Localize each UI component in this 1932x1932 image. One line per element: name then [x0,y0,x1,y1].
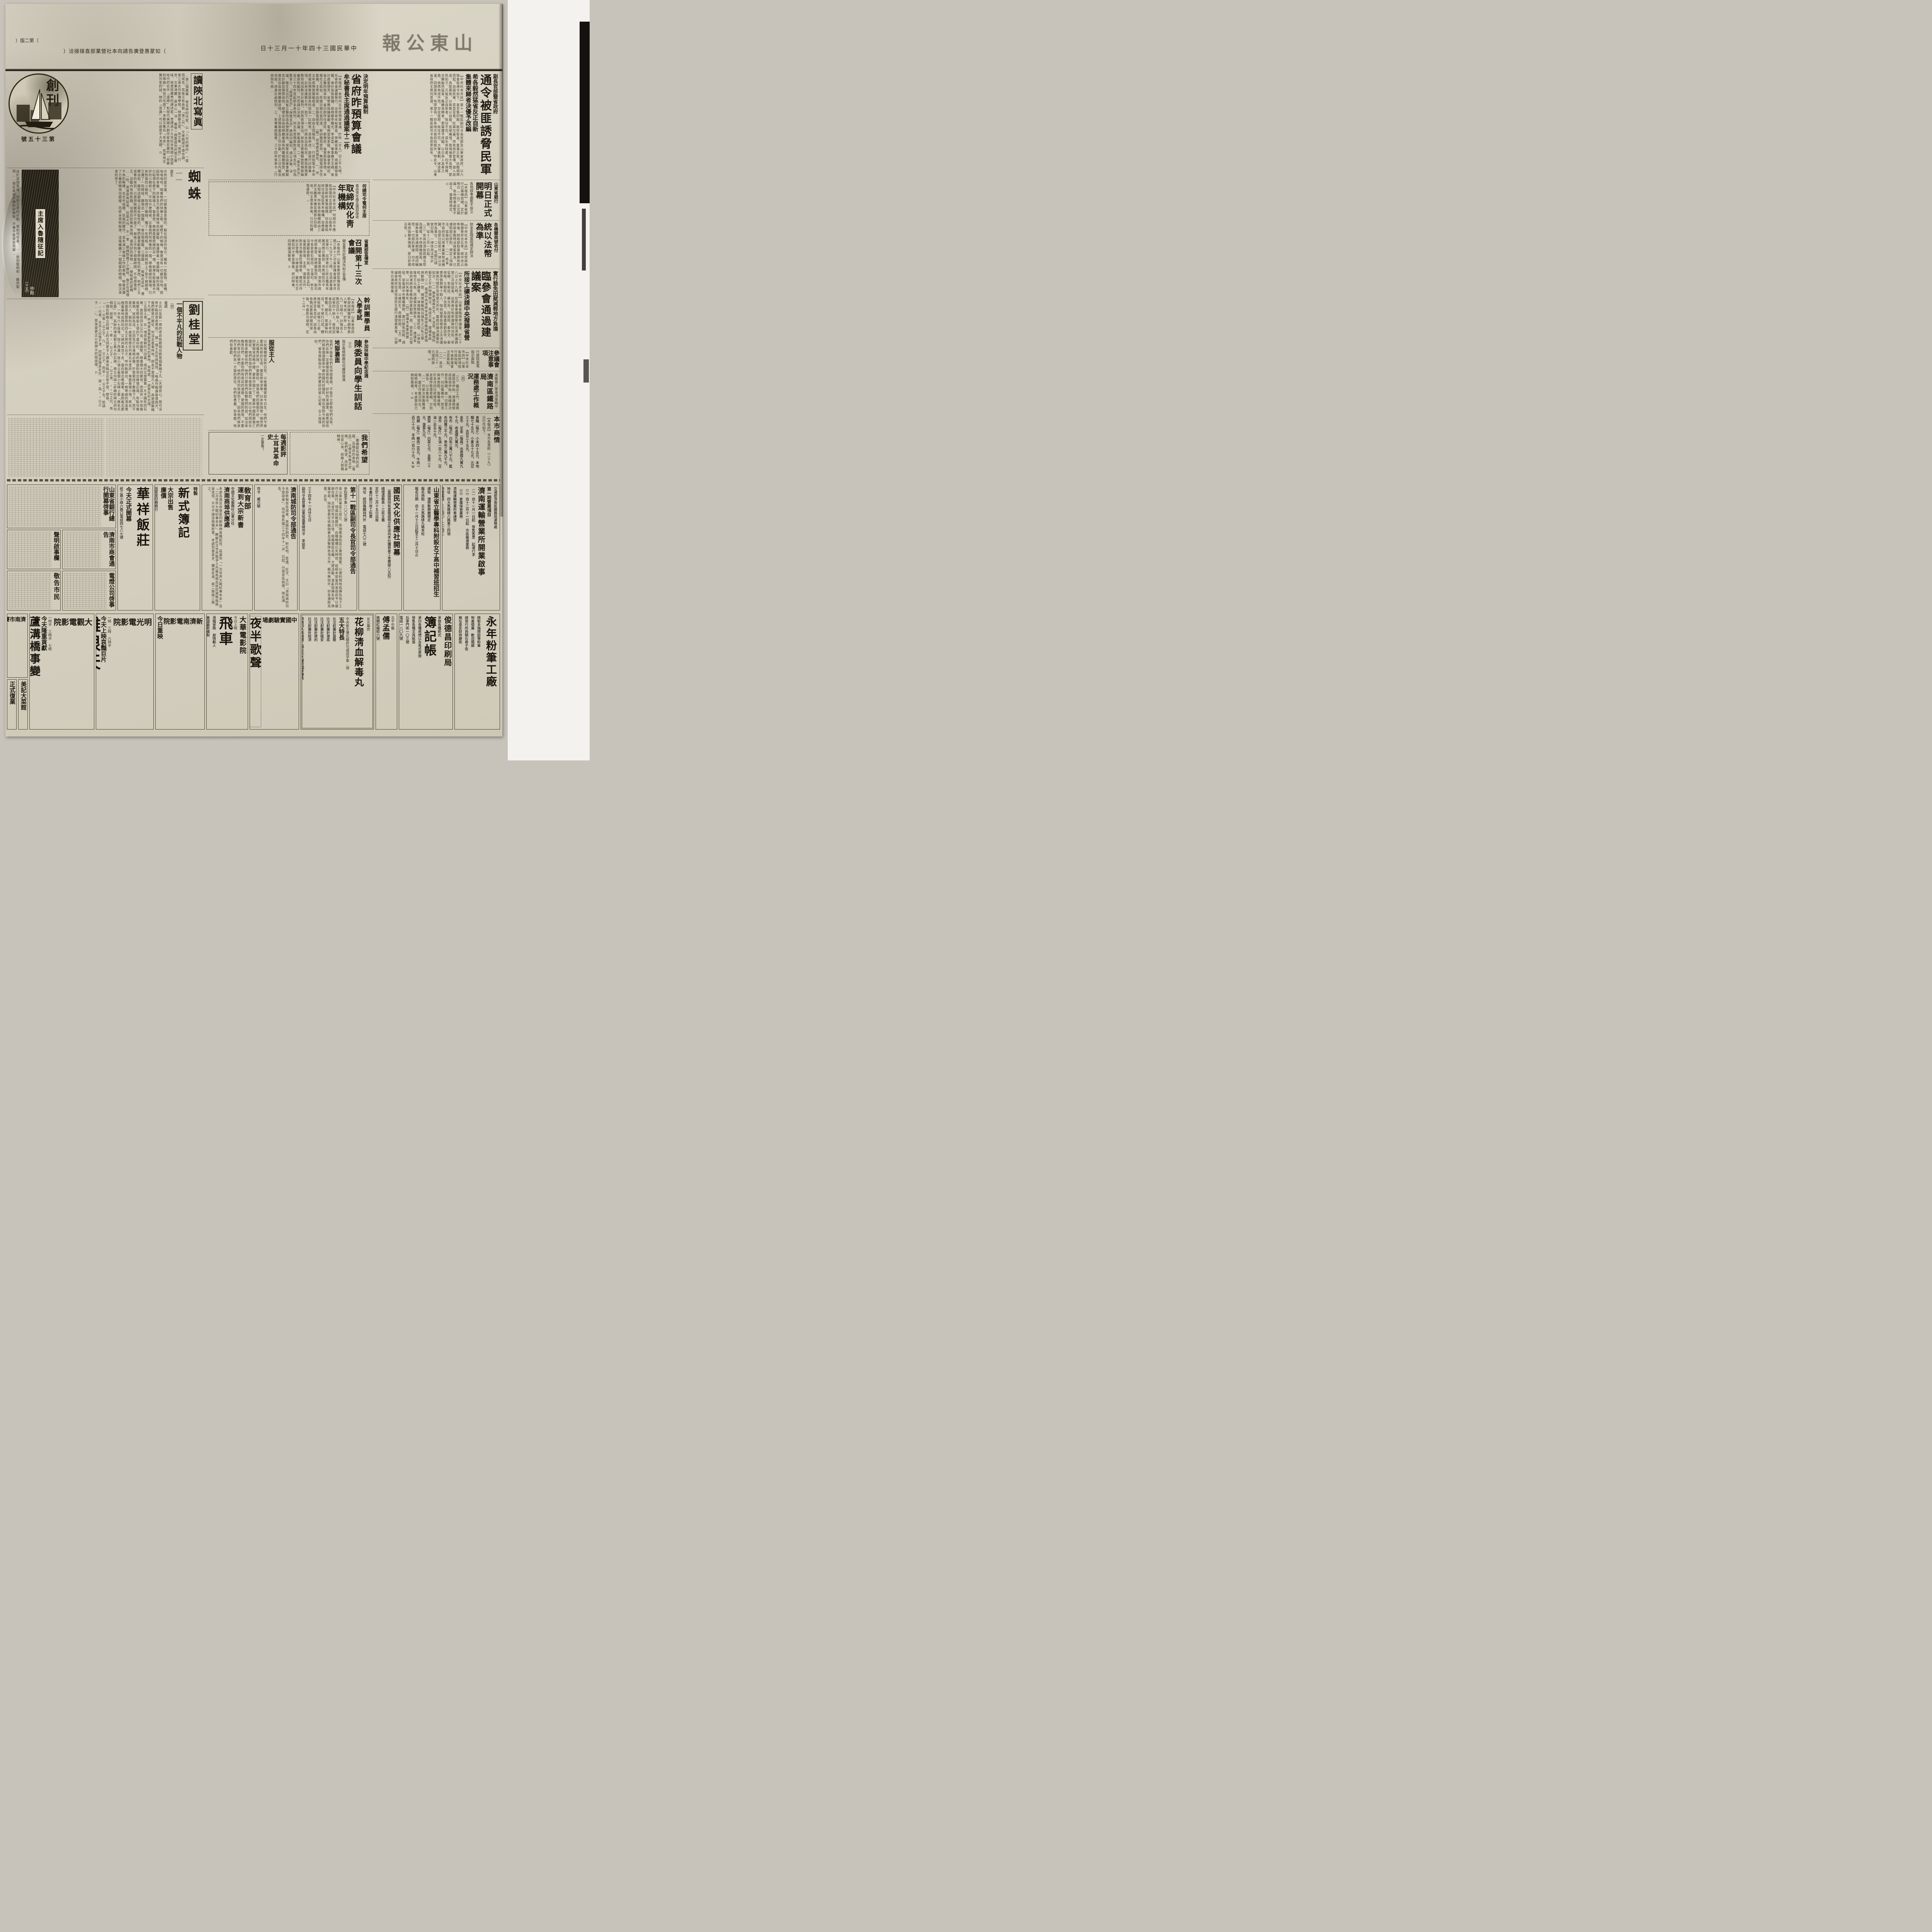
notice-title: 聲明啟事欄 [53,532,59,568]
ad-title: 新式簿記 [174,487,191,608]
article-body: 【本報訊】山東省銀行已籌備就緒、定於明日（一日）正式開幕、各地辦事處暫不設立、需… [374,182,468,218]
ad-address: 經三路小緯六路口電話四七八七號 [119,487,124,608]
serial-title: 主席入魯隨征記 [35,209,46,259]
ad-title: 華祥飯莊 [132,487,151,608]
ad-date: 三十四年十一月廿七日 [307,487,312,608]
article-kicker: 省黨部宣傳室 [363,239,369,265]
ad-xinjinan-cinema: 院影電南濟新 今日重映 英茵遺作 返魂香 劇情動人 百觀不厭 日場二時 夜場七時… [155,614,205,730]
article-xunhua: 參加扶輪中學紀念週 陳委員向學生訓話 （三） 指示兩條明路句句痛快淋漓 地獄裏面… [208,338,370,430]
cinema-name: 大華電影院 [239,616,246,727]
newspaper-scan: ）版二第（ ）洽接接直部業營社本向請告廣登惠蒙如（ 日十三月一十年四十三國民華中… [0,0,590,760]
article-title-2: 運務處工作概況 [467,373,478,412]
ad-feature: 比注射藥針靈驗 [332,617,337,726]
ad-line: （三）倉庫保管業務 [459,487,464,608]
article-subtitle: 指示兩條明路句句痛快淋漓 [341,340,346,381]
ad-number: 參鈞璽字第一〇〇三號 [343,487,348,608]
article-title: 陳委員向學生訓話 [354,340,362,411]
ad-line: 滑稽冒險 劇情動人 [212,616,217,727]
ad-agency: 中國文化服務社山東分社 [230,487,235,608]
unreadable-text-columns [64,573,107,609]
article-shangqing: 本市商情 【本報訊】本市各貨昨（二十九）日行市如下、 食糧（每斤）小米四十五元、… [372,414,500,472]
ad-price-word: 廉價 [160,487,166,608]
ad-feature: 比注射藥針穩安 [320,617,325,726]
masthead-date: 日十三月一十年四十三國民華中 [260,44,358,52]
notice-shengbank: 山東省銀行總行開幕啓事 [7,485,116,528]
classifieds-box: 正式復業 三奇 保三製藥廠總發售 精製滅痙疥癬 統治各科 雅潔養病室 隨意入院 … [7,679,17,730]
market-item: 肉類（每斤）豬肉二百元、牛肉一百三十元、羊肉一百六十元、KW [411,416,421,470]
article-body: 【中央社本市訊】山東省臨時參議會、於二十八日上午九時、在該會會議室舉行在濟參議員… [374,271,462,346]
ad-line: 濟南運輸營業所奉謹啓 [452,487,457,608]
ad-title: 國民文化供應社開幕 [393,487,400,608]
notice-shanghui: 濟南市商會通告 [62,530,116,570]
article-title: 明日正式開幕 [475,182,492,218]
market-item: 布市（每疋）白布三萬八千元、藍布四萬三千元、靑布三萬九千元、 [443,416,453,470]
ad-feature-head: 五大特長 [338,617,344,726]
notice-title: 濟南市商會通告 [102,532,114,568]
ad-guomin: 國民文化供應社開幕 （黨國員持有黨團證明文件逕向本社購買者工本費按八五扣） 總理… [359,485,402,611]
ad-daguan-cinema: 院影電觀大 一時半 三時半 七時 今天隆重貢獻 蘆溝橋事變 抗戰歌曲 加映 美國… [29,614,94,730]
ad-kicker: 北平中醫 [390,616,395,727]
ad-tag-2: 大宗出售 [167,487,173,608]
article-subtitle: 所接工礦決請中央撥歸省營 [463,271,469,340]
ad-body: 本處為滿足收復區同胞精神食糧起見、茲運到「一次世界大戰紀事本末」及「二次世界大戰… [204,487,222,608]
notice-title: 電燈公司啓事 [108,573,114,609]
classified-line: 正式復業 [9,681,15,728]
article-kicker: 參加扶輪中學紀念週 [363,340,369,378]
article-xuanchuan: 省黨部宣傳室 召開第十三次會議 關金黑市貶價決作糾正宣傳 【本報訊】山東省黨部宣… [208,237,370,295]
ad-title: 山東省立醫學專科附設女子高中補習班招生 [433,487,439,608]
article-body: 【中央社本市訊】法幣與偽聯銀券折合比率、經中央公佈後、財政部駐冀魯察熱區財政金融… [374,223,468,267]
article-body: 【本報訊】山東省黨部宣傳室召開之第十三次省宣傳會議於本月二十九日下午二時、在該處… [209,239,340,293]
section-body: 我們不能看你們在地獄裏面、不能不立即救你們出來、你們此後一定要服從張校長、好好的… [275,340,333,428]
ad-fenbi: 永年粉筆工廠 精製多福牌超等粉筆 物美價廉 歡迎賜顧 總發行所西關石巷子街 廠址… [454,614,500,730]
ad-line: 發售各種文具紙張 [411,616,416,727]
show-title: 夜半歌聲 [250,616,261,727]
cinema-name: 院影電觀大 [54,616,92,727]
ad-feature: 比注射藥針便利 [313,617,318,726]
ad-huaxiang: 華祥飯莊 今天正式開幕 經三路小緯六路口電話四七八七號 [117,485,153,611]
article-kicker: 各機關商號收付 [493,223,499,252]
unreadable-text-columns [9,417,104,477]
notice-jinggao: 敬告市民 [7,571,61,611]
article-title: 通令被匪誘脅民軍 [479,74,490,176]
article-subtitle: 牟秘書長主席通過議案十二件 [343,74,349,149]
ad-chengfang-tonggao: 濟南城防司令部通告 本部新製官佐證章、係圓形銅質、粉紅地、藍邊、紅字、文曰「濟南… [254,485,298,611]
serial-body: 由於這個電報、可知主席的計劃、是如何完善、……敖到黎明呢·雖然黎明……現在竟被扞… [9,170,19,297]
article-body: …繼續獻出他們的武器、及積存的食物（毒品）、以便多來幾次焚燒、我們希望、商民拿出… [292,434,359,472]
article-body: 【本報訊】省府卅五年度預算會議、於昨（廿九）日上午九時、在省府會議廳舉行、出席者… [209,74,342,178]
notice-title: 敬告市民 [53,573,59,609]
essay-body: 炎熱的夏天裏、一切都像窒息般的、躱在陰涼的地方、獨有一些動物、蒼蠅、嗡嗡嗡地、唱… [61,170,167,297]
article-title-2: 入學考試 [356,297,362,320]
article-title: 臨參會通過建議案 [470,271,490,346]
ad-title: 永年粉筆工廠 [483,616,498,727]
cinema-name: 院影電南濟新 [163,616,203,727]
article-subtitle: 集體來歸者決優予改編 [465,74,471,132]
article-ganxun: 幹訓團學員 入學考試 【本報訊】山東省政府幹部訓練團第七期學員入學考試、於昨（廿… [208,295,370,338]
market-item: 食糧（每斤）小米四十五元、本地麵七十五元、小麥五十七元、元豆三十元、吉豆三十五元… [465,416,480,470]
article-kicker: 副長官部曁省政府 [492,74,499,114]
scan-artifact [582,209,586,270]
ad-tag: 特製 [192,487,198,608]
unreadable-text-columns [9,573,51,609]
article-kicker: 決定明年預算編制 [362,74,369,114]
article-subtitle: 希各毅然猛省反正自新 [472,74,478,132]
ad-line: 名廚製做 [18,681,19,728]
ad-title: 傅孟儒 [382,616,389,727]
section-heading: 地獄裏面 [334,340,340,428]
feature-part: （四） [170,301,175,311]
classified-line: 三奇 [7,681,8,728]
unreadable-text-columns [107,417,202,477]
ad-title: 運到大宗新書 [236,487,243,608]
ad-office: 濟南商埠供應處 [223,487,229,608]
ad-address: 地址 四大馬路緯六路第三四號 [446,487,451,608]
section-heading: 服從主人 [268,340,274,428]
notice-shengming: 聲明啟事欄 [7,530,61,570]
article-body: 【中央社本市訊】山東省政府頃接行政院電、今後參議會注意兩點、（一）…（二）准司法… [374,350,469,369]
article-kicker: 山東省銀行 [493,182,499,203]
column-center: 決定明年預算編制 省府昨預算會議 牟秘書長主席通過議案十二件 【本報訊】省府卅五… [208,72,370,477]
film-review-note: 一定要看！ [260,434,265,473]
film-title: 飛車 [218,616,232,727]
ad-note: 今日上映 [233,616,238,727]
ad-note: 今日重映 [156,616,162,727]
ad-note: 今天上映哀豔巨片 [100,616,106,727]
article-title: 每週影評 [280,434,286,473]
feature-shanbei: 讀陝北寫眞 …第二個蕭軍·是吉林的作家、以「八月的鄕村」一書而成名、其後又有長篇… [7,72,204,168]
ad-header: 交通部濟南區鐵路局運務處 [493,487,498,608]
ad-kicker: 敎育部 [244,487,251,608]
ads-row-1: 交通部濟南區鐵路局運務處 第一期營業項目 濟南運輸營業所開業啟事 （一）自十一月… [7,485,500,611]
ornamental-divider [7,479,500,481]
feature-title: 劉桂堂 [183,301,203,350]
edition-label: ）版二第（ [15,37,39,44]
article-wishes: 我們希望 …繼續獻出他們的武器、及積存的食物（毒品）、以便多來幾次焚燒、我們希望… [290,432,369,474]
scan-margin [508,0,590,760]
essay-author: 雲生 [169,170,174,177]
column-left: 讀陝北寫眞 …第二個蕭軍·是吉林的作家、以「八月的鄕村」一書而成名、其後又有長篇… [7,72,204,477]
article-zhuyi: 參議會注意事項 行政院來電指示兩點 【中央社本市訊】山東省政府頃接行政院電、今後… [372,348,500,371]
film-title: 蘆溝橋事變 [29,616,39,727]
article-title: 濟南區鐵路局 [480,373,493,412]
ad-line: 地址 經四路麟祥門外 電話七〇二號 [362,487,367,608]
feature-body: …第二個蕭軍·是吉林的作家、以「八月的鄕村」一書而成名、其後又有長篇「第二代」、… [71,73,189,166]
ad-mingguang-cinema: 院影電光明 一時 三時 六時半 今天上映哀豔巨片 離恨天 主演 錢士英 玲玲 加… [96,614,154,730]
essay-title: 蜘蛛 [184,170,202,204]
article-tongling: 副長官部曁省政府 通令被匪誘脅民軍 希各毅然猛省反正自新 集體來歸者決優予改編 … [372,72,500,180]
article-subtitle: 各地辦事處暫不設立 [469,182,474,213]
market-item: 油市（每斤）生油一百八十元、豆油一百五十元、 [432,416,442,470]
ad-zhan11-tonggao: 第十一戰區副司令長官司令部通告 參鈞璽字第一〇〇三號 查山東各軍區之設立、係適應… [299,485,357,611]
notice-title: 山東省銀行總行開幕啓事 [102,486,114,526]
article-body: （乙）最近工作、運務處接收伊始、適運務號誌接收伊始、路線迭次發生障礙、故一切要工… [374,373,459,412]
serial-part: （十五） [23,279,29,295]
ad-address: 后宰門街一〇三號 [405,616,410,727]
serial-woodcut: 主席入魯隨征記 （十五） 仲勛 [22,170,59,297]
article-intro: 【本報訊】本市各貨昨（二十九）日行市如下、 [481,416,492,470]
scan-artifact [580,22,590,203]
article-bank: 山東省銀行 明日正式開幕 各地辦事處暫不設立 【本報訊】山東省銀行已籌備就緒、定… [372,180,500,221]
article-kicker: 運輸第八軍來濟車輛中 [494,373,499,408]
ad-line: 承印各種商標以及各式表冊 [417,616,422,727]
cinema-name: 院影電光明 [113,616,152,727]
ad-tag: 第一期營業項目 [486,487,492,608]
unreadable-text-columns [64,532,101,568]
ad-line: 課程 遵照敎務廳規定 [427,487,432,608]
emblem-issue-number: 號五十三第 [21,135,56,143]
ad-title: 濟南運輸營業所開業啟事 [477,487,485,608]
ad-phone: 電話一八〇九號 [399,616,404,727]
ad-feature: 比注射藥針經濟 [307,617,312,726]
notice-diandeng: 電燈公司啓事 [62,571,116,611]
article-subtitle: 行政院來電指示兩點 [470,350,480,369]
film-title: 離恨天 [96,616,99,727]
article-body: 【中央社本市訊】第十一戰區副司令長官部及山東省政府、以六號會銜通令如下、查吾魯同… [374,74,463,178]
article-fabi: 各機關商號收付 統以法幣為準 財金金融當局規定辦法 【中央社本市訊】法幣與偽聯銀… [372,221,500,269]
ad-showtimes: 一時半 三時半 七時 [48,616,53,727]
feature-liuguitang: 劉桂堂 一個不平凡的抗戰人物 （四） 雷諾 士兵以及那一帶的老百姓都相信劉是個鱉… [7,299,204,415]
ad-dahua-cinema: 大華電影院 今日上映 飛車 滑稽冒險 劇情動人 美國最新攝製 五彩卡通 時間 二… [206,614,248,730]
article-title: 我們希望 [361,434,367,472]
ad-line: 總發行所西關石巷子街 [464,616,469,727]
ad-line: （二）自十二月十一日起 市區搬運業務 [465,487,470,608]
feature-title: 讀陝北寫眞 [191,73,202,129]
ad-address: 南關紅牆街六號 [376,616,381,727]
article-subtitle: 着由靑年團支團部接收 [355,184,360,219]
ad-juchang: 場劇驗實國中 夜半歌聲 今日最後一天 明日夜場上演 四幕二景大喜劇 陽關三疊 [250,614,299,730]
ad-junde: 俊德昌印刷局 承做各種新式 簿記帳 承印各種商標以及各式表冊 發售各種文具紙張 … [399,614,453,730]
section-body: 以前種種譬如昨日死、以後種種譬如今日生、你們今後要與有新的生命、要從新來求學、日… [209,340,267,428]
newspaper-page: ）版二第（ ）洽接接直部業營社本向請告廣登惠蒙如（ 日十三月一十年四十三國民華中… [5,4,502,736]
ad-saima: 會馬賽市南濟 連續賽馬三日 十一月卅日十二月一二日 （雨天順延） 地址 南郊跑馬… [7,614,28,678]
ad-line: 物美價廉 歡迎賜顧 [470,616,475,727]
article-title: 幹訓團學員 [363,297,369,332]
article-kicker: 何總司令電何主席 [361,184,367,218]
ad-huajiu: 友光藥房 花柳淸血解毒丸 中央衛生署化驗許可證成字第…號 五大特長 比注射藥針靈… [301,614,374,730]
article-title: 省府昨預算會議 [350,74,361,155]
feature-body: 士兵以及那一帶的老百姓都相信劉是個鱉精下凡（天理良心、我可沒有半點惡意來罵他）、… [8,301,162,413]
serial-author: 仲勛 [29,286,35,295]
article-linsan: 實行豁免田賦減輕地方負擔 臨參會通過建議案 所接工礦決請中央撥歸省營 【中央社本… [372,269,500,348]
article-yusuan: 決定明年預算編制 省府昨預算會議 牟秘書長主席通過議案十二件 【本報訊】省府卅五… [208,72,370,180]
article-title: 召開第十三次會議 [348,239,362,293]
masthead-ad-note: ）洽接接直部業營社本向請告廣登惠蒙如（ [63,47,166,54]
ad-feature: 比注射藥針澈底 [326,617,331,726]
masthead-rule [5,70,502,71]
article-quti: 何總司令電何主席 着由靑年團支團部接收 取締奴化靑年機構 【中央社本市訊】何總司… [209,182,369,236]
ad-cert: 中央衛生署化驗許可證成字第…號 [345,617,350,726]
article-title: 統以法幣為準 [475,223,492,267]
ad-seller: 恒翠堂印務商行 [155,487,159,608]
ad-line: 總理遺敎表・三民主義 [381,487,386,608]
left-ads-stack: 會馬賽市南濟 連續賽馬三日 十一月卅日十二月一二日 （雨天順延） 地址 南郊跑馬… [7,614,28,730]
sailboat-illustration [10,75,68,133]
market-item: 蔬菜（每斤）白菜七元、韭菜二十元、菠菜九元、 [422,416,432,470]
ad-signer: 司令 臧元駿 [256,487,261,608]
film-review-title: 土耳其革命史 [267,434,278,473]
article-part: （四） [461,373,466,384]
ad-signer: 副司令長官兼山東挺進軍總司令 李延年 [301,487,306,608]
column-right: 副長官部曁省政府 通令被匪誘脅民軍 希各毅然猛省反正自新 集體來歸者決優予改編 … [372,72,500,477]
ad-line: 承做各種新式 [437,616,442,727]
article-body: 【本報訊】山東省政府幹部訓練團第七期學員入學考試、於昨（廿九）日舉行、計報名人數… [209,297,354,335]
ad-title: 會馬賽市南濟 [7,616,26,676]
ad-line: 報名日期 自十一月十三日起至十二月十日止 [414,487,419,608]
ad-meiji: 美記大菜館 名廚製做 富麗堂皇 地點適中便利 靑年會內 [18,679,28,730]
ad-fumengru: 北平中醫 傅孟儒 南關紅牆街六號 [376,614,397,730]
article-title: 取締奴化靑年機構 [337,184,354,233]
ad-line: 廠址泰安財政廳街 [458,616,463,727]
ad-line: （黨國員持有黨團證明文件逕向本社購買者工本費按八五扣） [387,487,392,608]
masthead: ）版二第（ ）洽接接直部業營社本向請告廣登惠蒙如（ 日十三月一十年四十三國民華中… [5,34,502,71]
ad-line: （一）自十一月一日起 發售客票 起運行李 [471,487,476,608]
article-body: 【中央社本市訊】何總司令應欽頃電何主席思源、以偽靑年團及新民會等組織、均為敵偽奴… [211,184,336,233]
article-yingping: 每週影評 土耳其革命史 一定要看！ [209,432,287,474]
article-tielu: 運輸第八軍來濟車輛中 濟南區鐵路局 運務處工作概況 （四） （乙）最近工作、運務… [372,371,500,414]
ad-line: 精製多福牌超等粉筆 [476,616,481,727]
ad-line: 美國最新攝製 [206,616,211,727]
feature-author: 雷諾 [163,301,168,308]
left-overflow-text [7,415,204,477]
notice-stack: 山東省銀行總行開幕啓事 濟南市商會通告 聲明啟事欄 電燈公司啓事 [7,485,116,611]
ad-phone: 商用電話 二七四〇 二七四二 [442,487,445,608]
article-title: 本市商情 [493,416,499,444]
ad-body: 本部新製官佐證章、係圓形銅質、粉紅地、藍邊、紅字、文曰「濟南城防司令部證章」、自… [262,487,289,608]
newspaper-title: 報公東山 [382,28,478,55]
scan-artifact [583,359,589,383]
ad-subtitle: 今天正式開幕 [125,487,131,608]
essay-title-dash: —— [175,170,182,183]
ad-note: 今天隆重貢獻 [41,616,46,727]
ad-buji: 特製 新式簿記 大宗出售 廉價 恒翠堂印務商行 經三路緯一路二三八號 電話一八五… [155,485,200,611]
ad-title: 美記大菜館 [20,681,26,728]
ad-jiaoyu-books: 敎育部 運到大宗新書 中國文化服務社山東分社 濟南商埠供應處 本處為滿足收復區同… [202,485,253,611]
ad-line: 本書行銷只收工料費 [368,487,373,608]
article-subtitle: 關金黑市貶價決作糾正宣傳 [342,239,347,281]
ad-title: 濟南城防司令部通告 [290,487,296,608]
article-part: （三） [347,340,352,350]
article-title: 參議會注意事項 [481,350,499,369]
ad-showtimes: 一時 三時 六時半 [107,616,112,727]
ad-shop: 友光藥房 [366,617,371,726]
ad-product: 簿記帳 [423,616,436,727]
ad-dealer: 濟南四大馬路緯二路友光大藥房獨家專售 [301,617,305,726]
market-item: 金市 足金（每兩）出貨價九萬九千元、收進價九萬元、 [454,416,464,470]
feature-zhizhu-row: 蜘蛛 —— 雲生 炎熱的夏天裏、一切都像窒息般的、躱在陰涼的地方、獨有一些動物、… [7,168,204,299]
ad-line: 報名地點 五大馬路緯九路本校 [420,487,425,608]
article-subtitle: 財金金融當局規定辦法 [469,223,474,257]
ad-title: 花柳淸血解毒丸 [351,617,365,726]
article-kicker: 實行豁免田賦減輕地方負擔 [492,271,499,331]
ads-row-2: 永年粉筆工廠 精製多福牌超等粉筆 物美價廉 歡迎賜顧 總發行所西關石巷子街 廠址… [7,614,500,730]
venue-name: 場劇驗實國中 [262,616,297,727]
unreadable-text-columns [9,532,52,568]
ad-yunshu: 交通部濟南區鐵路局運務處 第一期營業項目 濟南運輸營業所開業啟事 （一）自十一月… [442,485,500,611]
ad-line: 定於十二月十五日出版 [374,487,379,608]
ad-yixue: 山東省立醫學專科附設女子高中補習班招生 課程 遵照敎務廳規定 報名地點 五大馬路… [403,485,440,611]
ad-body: 查山東各軍區之設立、係適應淪陷區之實際需要、以便利現地指揮及地下工作之推行、現值… [313,487,342,608]
chuankan-emblem: 創刊 [9,73,69,134]
feature-kicker: 一個不平凡的抗戰人物 [176,301,182,359]
unreadable-text-columns [9,486,101,526]
ad-title: 俊德昌印刷局 [443,616,451,727]
ad-title: 第十一戰區副司令長官司令部通告 [349,487,355,608]
